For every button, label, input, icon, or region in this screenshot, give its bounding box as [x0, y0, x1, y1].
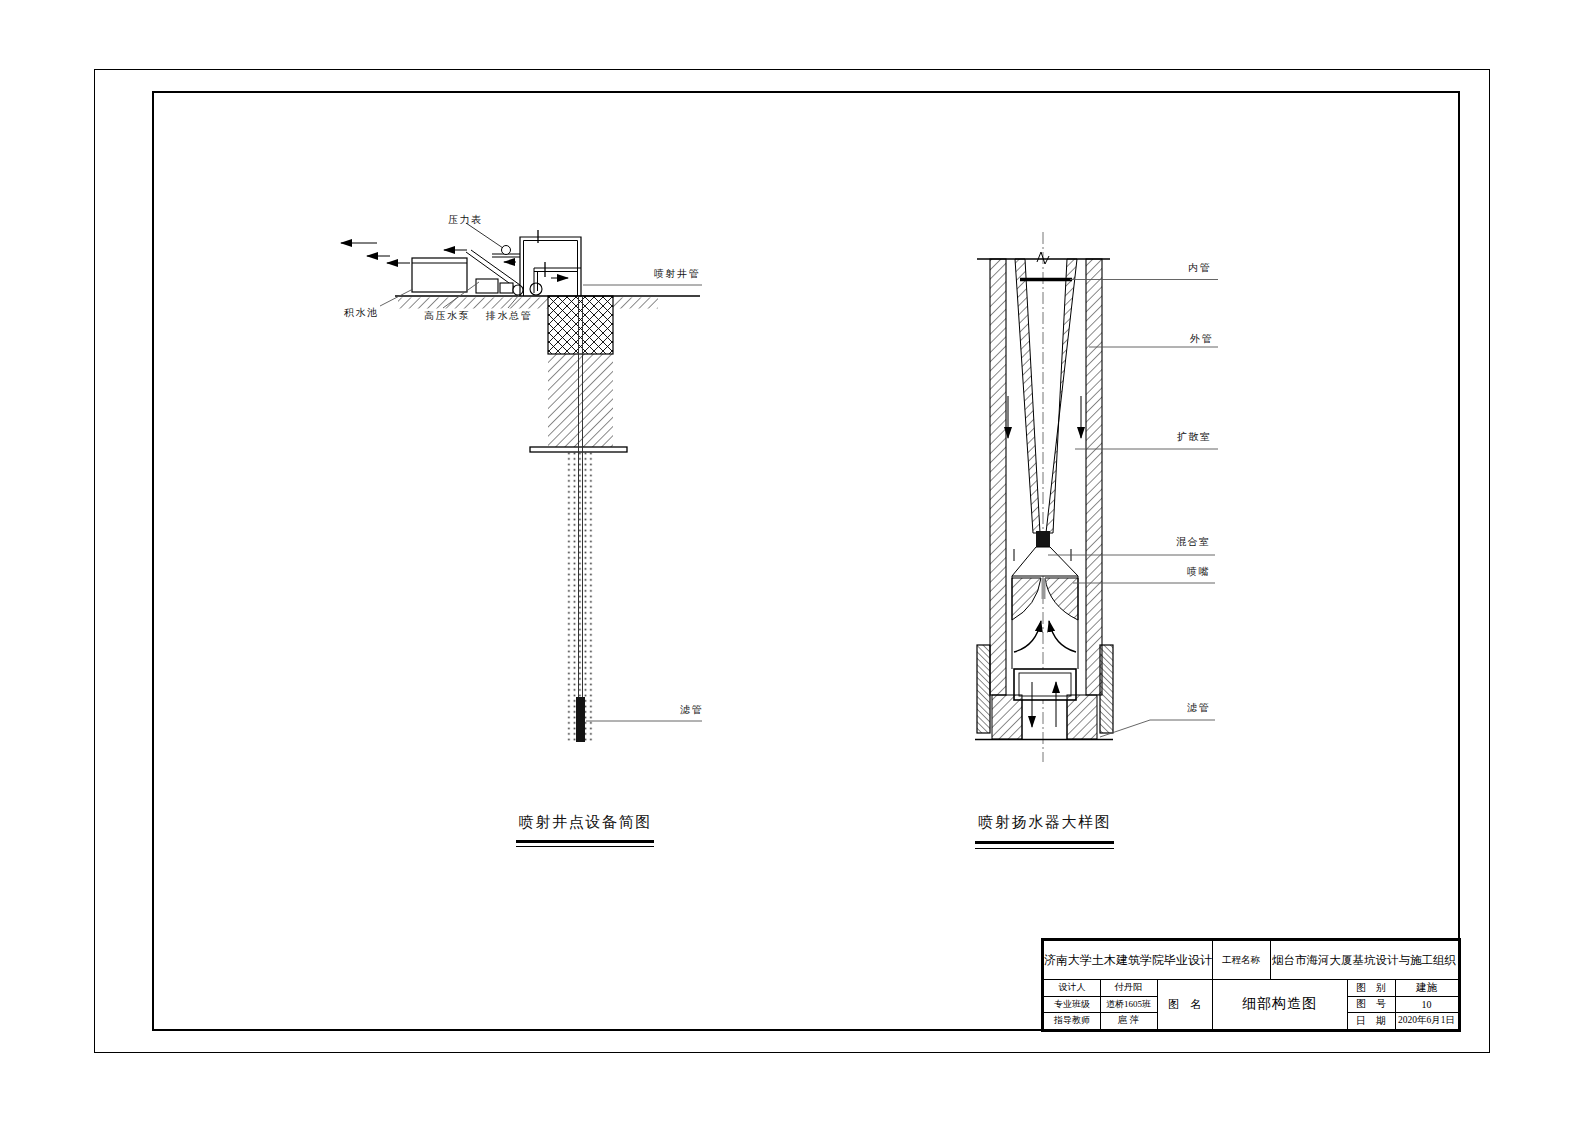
title-project-name: 烟台市海河大厦基坑设计与施工组织 — [1270, 941, 1458, 979]
left-caption-underline-thick — [516, 840, 654, 843]
drawing-sheet: 压力表 积水池 高压水泵 排水总管 喷射井管 滤管 内管 外管 扩散室 混合室 … — [0, 0, 1588, 1122]
right-caption-underline-thick — [975, 841, 1114, 844]
label-mixing-chamber: 混合室 — [1176, 535, 1211, 549]
title-block: 济南大学土木建筑学院毕业设计 工程名称 烟台市海河大厦基坑设计与施工组织 设计人… — [1041, 938, 1461, 1032]
class-name: 道桥1605班 — [1100, 996, 1157, 1012]
designer-name: 付丹阳 — [1100, 979, 1157, 996]
high-pressure-pump — [476, 279, 542, 295]
inner-pipe-walls — [1015, 259, 1077, 533]
label-pressure-gauge: 压力表 — [448, 213, 483, 227]
label-outer-pipe: 外管 — [1190, 332, 1213, 346]
date-label: 日 期 — [1347, 1012, 1395, 1029]
label-nozzle: 喷嘴 — [1187, 565, 1210, 579]
well-section — [530, 296, 627, 742]
right-diagram-caption: 喷射扬水器大样图 — [977, 813, 1113, 832]
right-caption-underline-thin — [975, 848, 1114, 849]
advisor-label: 指导教师 — [1044, 1012, 1100, 1029]
label-jet-well-pipe: 喷射井管 — [654, 267, 700, 281]
left-caption-underline-thin — [516, 846, 654, 847]
well-piping-loop — [520, 230, 581, 296]
left-diagram-linework — [341, 223, 702, 742]
title-school: 济南大学土木建筑学院毕业设计 — [1044, 941, 1212, 979]
advisor-name: 扈 萍 — [1100, 1012, 1157, 1029]
label-filter-pipe-right: 滤管 — [1187, 701, 1210, 715]
label-filter-pipe-left: 滤管 — [680, 703, 703, 717]
number-value: 10 — [1395, 996, 1458, 1012]
number-label: 图 号 — [1347, 996, 1395, 1012]
pressure-gauge — [466, 223, 520, 262]
label-drain-main: 排水总管 — [486, 309, 532, 323]
category-label: 图 别 — [1347, 979, 1395, 996]
right-diagram-linework — [975, 232, 1218, 762]
class-label: 专业班级 — [1044, 996, 1100, 1012]
outer-pipe-walls — [990, 259, 1102, 695]
title-project-label: 工程名称 — [1212, 941, 1270, 979]
label-sump: 积水池 — [344, 306, 379, 320]
left-diagram-leaders — [380, 282, 702, 721]
discharge-flow-arrows — [341, 243, 410, 263]
designer-label: 设计人 — [1044, 979, 1100, 996]
label-inner-pipe: 内管 — [1188, 261, 1211, 275]
left-diagram-caption: 喷射井点设备简图 — [518, 813, 653, 832]
label-pump: 高压水泵 — [424, 309, 470, 323]
date-value: 2020年6月1日 — [1395, 1012, 1458, 1029]
label-diffusion-chamber: 扩散室 — [1177, 430, 1212, 444]
sump-tank — [412, 258, 467, 292]
category-value: 建施 — [1395, 979, 1458, 996]
drawing-name: 细部构造图 — [1212, 979, 1347, 1029]
mixing-chamber-nozzle — [1012, 531, 1078, 669]
drawing-name-label: 图 名 — [1157, 979, 1212, 1029]
